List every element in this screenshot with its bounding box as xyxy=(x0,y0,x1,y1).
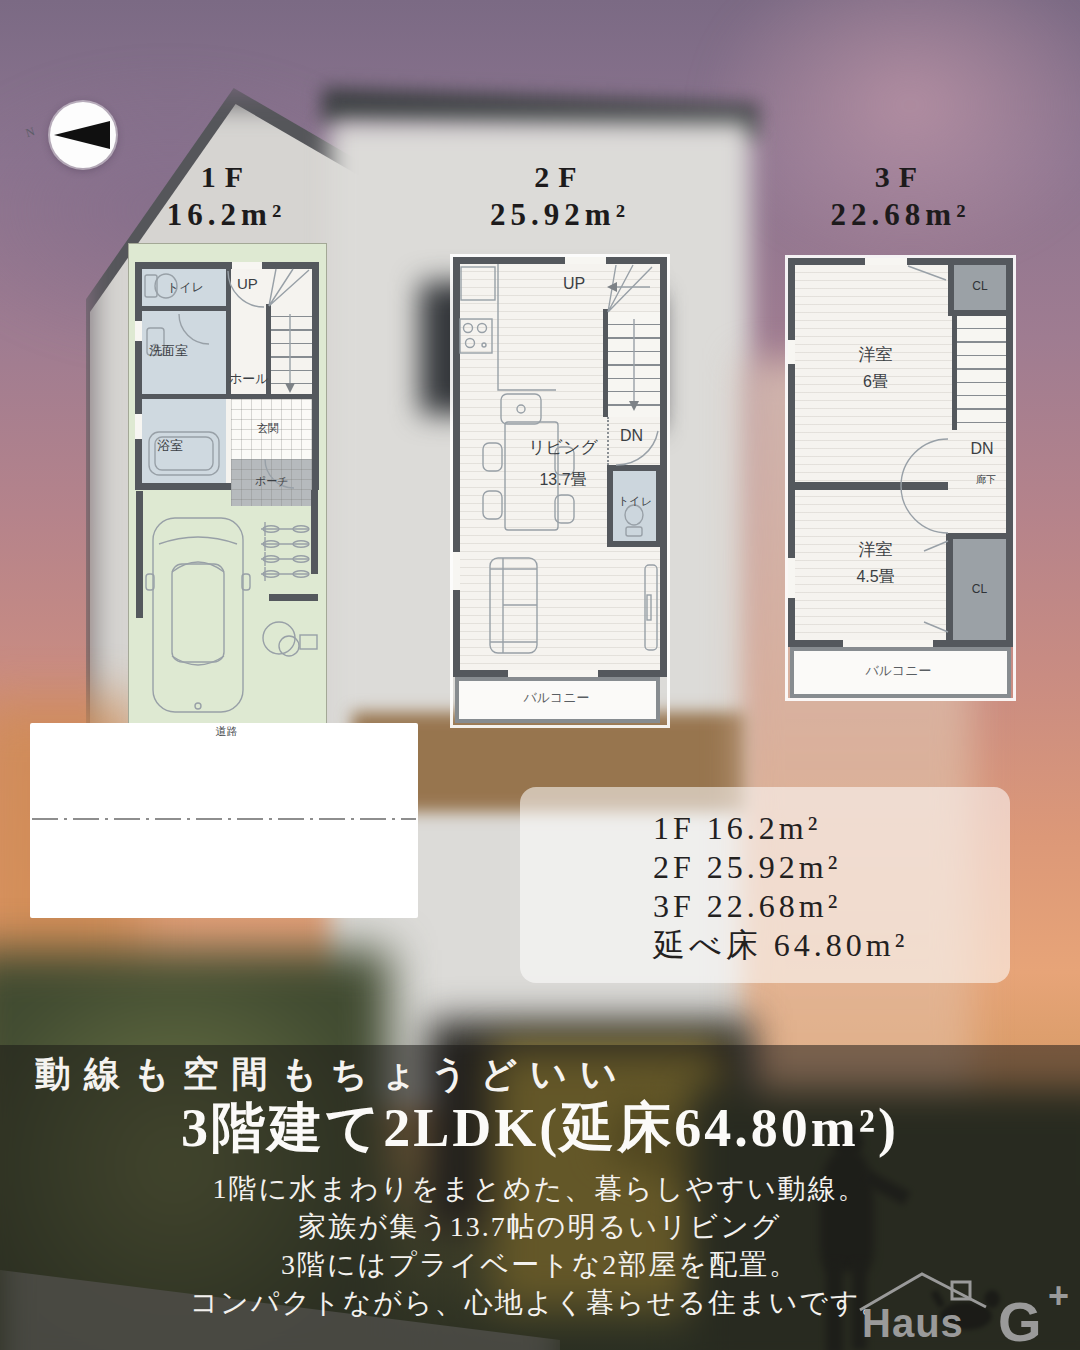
logo-plus-text: + xyxy=(1048,1275,1069,1317)
stair-winders xyxy=(269,269,309,393)
floor-title-2f: 2F 25.92m² xyxy=(453,160,667,233)
label-room6-size: 6畳 xyxy=(808,373,943,391)
label-balcony-2f: バルコニー xyxy=(453,691,660,705)
bicycle-rack-icon xyxy=(261,522,309,581)
floor-title-1f: 1F 16.2m² xyxy=(128,160,325,233)
floor-1f-area: 16.2m² xyxy=(128,197,325,233)
floor-3f-area: 22.68m² xyxy=(788,197,1013,233)
label-up-2f: UP xyxy=(563,275,585,293)
floor-plan-1f: トイレ UP 洗面室 ホール 浴室 玄関 ポーチ xyxy=(128,243,327,724)
compass-needle-icon xyxy=(54,121,110,149)
label-hall: ホール xyxy=(229,372,269,386)
label-bath: 浴室 xyxy=(157,439,183,453)
tv-board-icon xyxy=(645,565,657,650)
floor-1f-label: 1F xyxy=(128,160,325,194)
brand-logo: Haus G + xyxy=(852,1255,1078,1350)
label-room45-size: 4.5畳 xyxy=(808,568,943,586)
label-entrance: 玄関 xyxy=(257,422,279,434)
label-cl-bottom: CL xyxy=(953,583,1006,596)
caption-desc-line1: 1階に水まわりをまとめた、暮らしやすい動線。 xyxy=(0,1170,1080,1208)
plan-2f-drawing xyxy=(453,257,667,725)
car-icon xyxy=(146,518,250,712)
logo-g-text: G xyxy=(998,1289,1042,1350)
label-living-size: 13.7畳 xyxy=(503,471,623,489)
site-note-box xyxy=(30,723,418,918)
sofa-icon xyxy=(490,558,537,653)
poster-canvas: N 1F 16.2m² 2F 25.92m² 3F 22.68m² xyxy=(0,0,1080,1350)
floor-2f-label: 2F xyxy=(453,160,667,194)
caption-desc-line2: 家族が集う13.7帖の明るいリビング xyxy=(0,1208,1080,1246)
label-washroom: 洗面室 xyxy=(149,344,188,358)
label-road: 道路 xyxy=(128,725,325,737)
label-room45: 洋室 xyxy=(808,541,943,560)
label-corridor: 廊下 xyxy=(964,474,1008,485)
label-porch: ポーチ xyxy=(255,475,289,487)
toilet-icon xyxy=(625,505,643,536)
area-summary-card: 1F 16.2m² 2F 25.92m² 3F 22.68m² 延べ床 64.8… xyxy=(520,787,1010,983)
summary-total: 延べ床 64.80m² xyxy=(653,926,908,965)
label-dn-2f: DN xyxy=(620,427,643,445)
label-cl-top: CL xyxy=(954,280,1006,293)
summary-3f: 3F 22.68m² xyxy=(653,887,908,926)
floor-2f-area: 25.92m² xyxy=(453,197,667,233)
caption-headline: 3階建て2LDK(延床64.80m²) xyxy=(0,1092,1080,1165)
stair-winders xyxy=(607,265,652,411)
label-toilet-1f: トイレ xyxy=(167,281,204,294)
logo-haus-text: Haus xyxy=(862,1301,964,1346)
plan-1f-drawing xyxy=(129,244,326,723)
label-room6: 洋室 xyxy=(808,346,943,365)
label-living: リビング xyxy=(503,439,623,458)
tree-icon xyxy=(263,622,317,656)
floor-plan-2f: UP DN リビング 13.7畳 トイレ バルコニー xyxy=(453,257,667,725)
summary-2f: 2F 25.92m² xyxy=(653,848,908,887)
label-balcony-3f: バルコニー xyxy=(788,664,1009,678)
summary-1f: 1F 16.2m² xyxy=(653,809,908,848)
floor-3f-label: 3F xyxy=(788,160,1013,194)
lot-boundary-line xyxy=(32,818,416,820)
floor-plan-3f: CL 洋室 6畳 DN 廊下 洋室 4.5畳 CL バルコニー xyxy=(788,258,1013,698)
label-toilet-2f: トイレ xyxy=(611,495,659,507)
label-dn-3f: DN xyxy=(958,440,1006,458)
floor-title-3f: 3F 22.68m² xyxy=(788,160,1013,233)
label-up-1f: UP xyxy=(237,276,258,293)
kitchen-counter-icon xyxy=(460,264,556,424)
